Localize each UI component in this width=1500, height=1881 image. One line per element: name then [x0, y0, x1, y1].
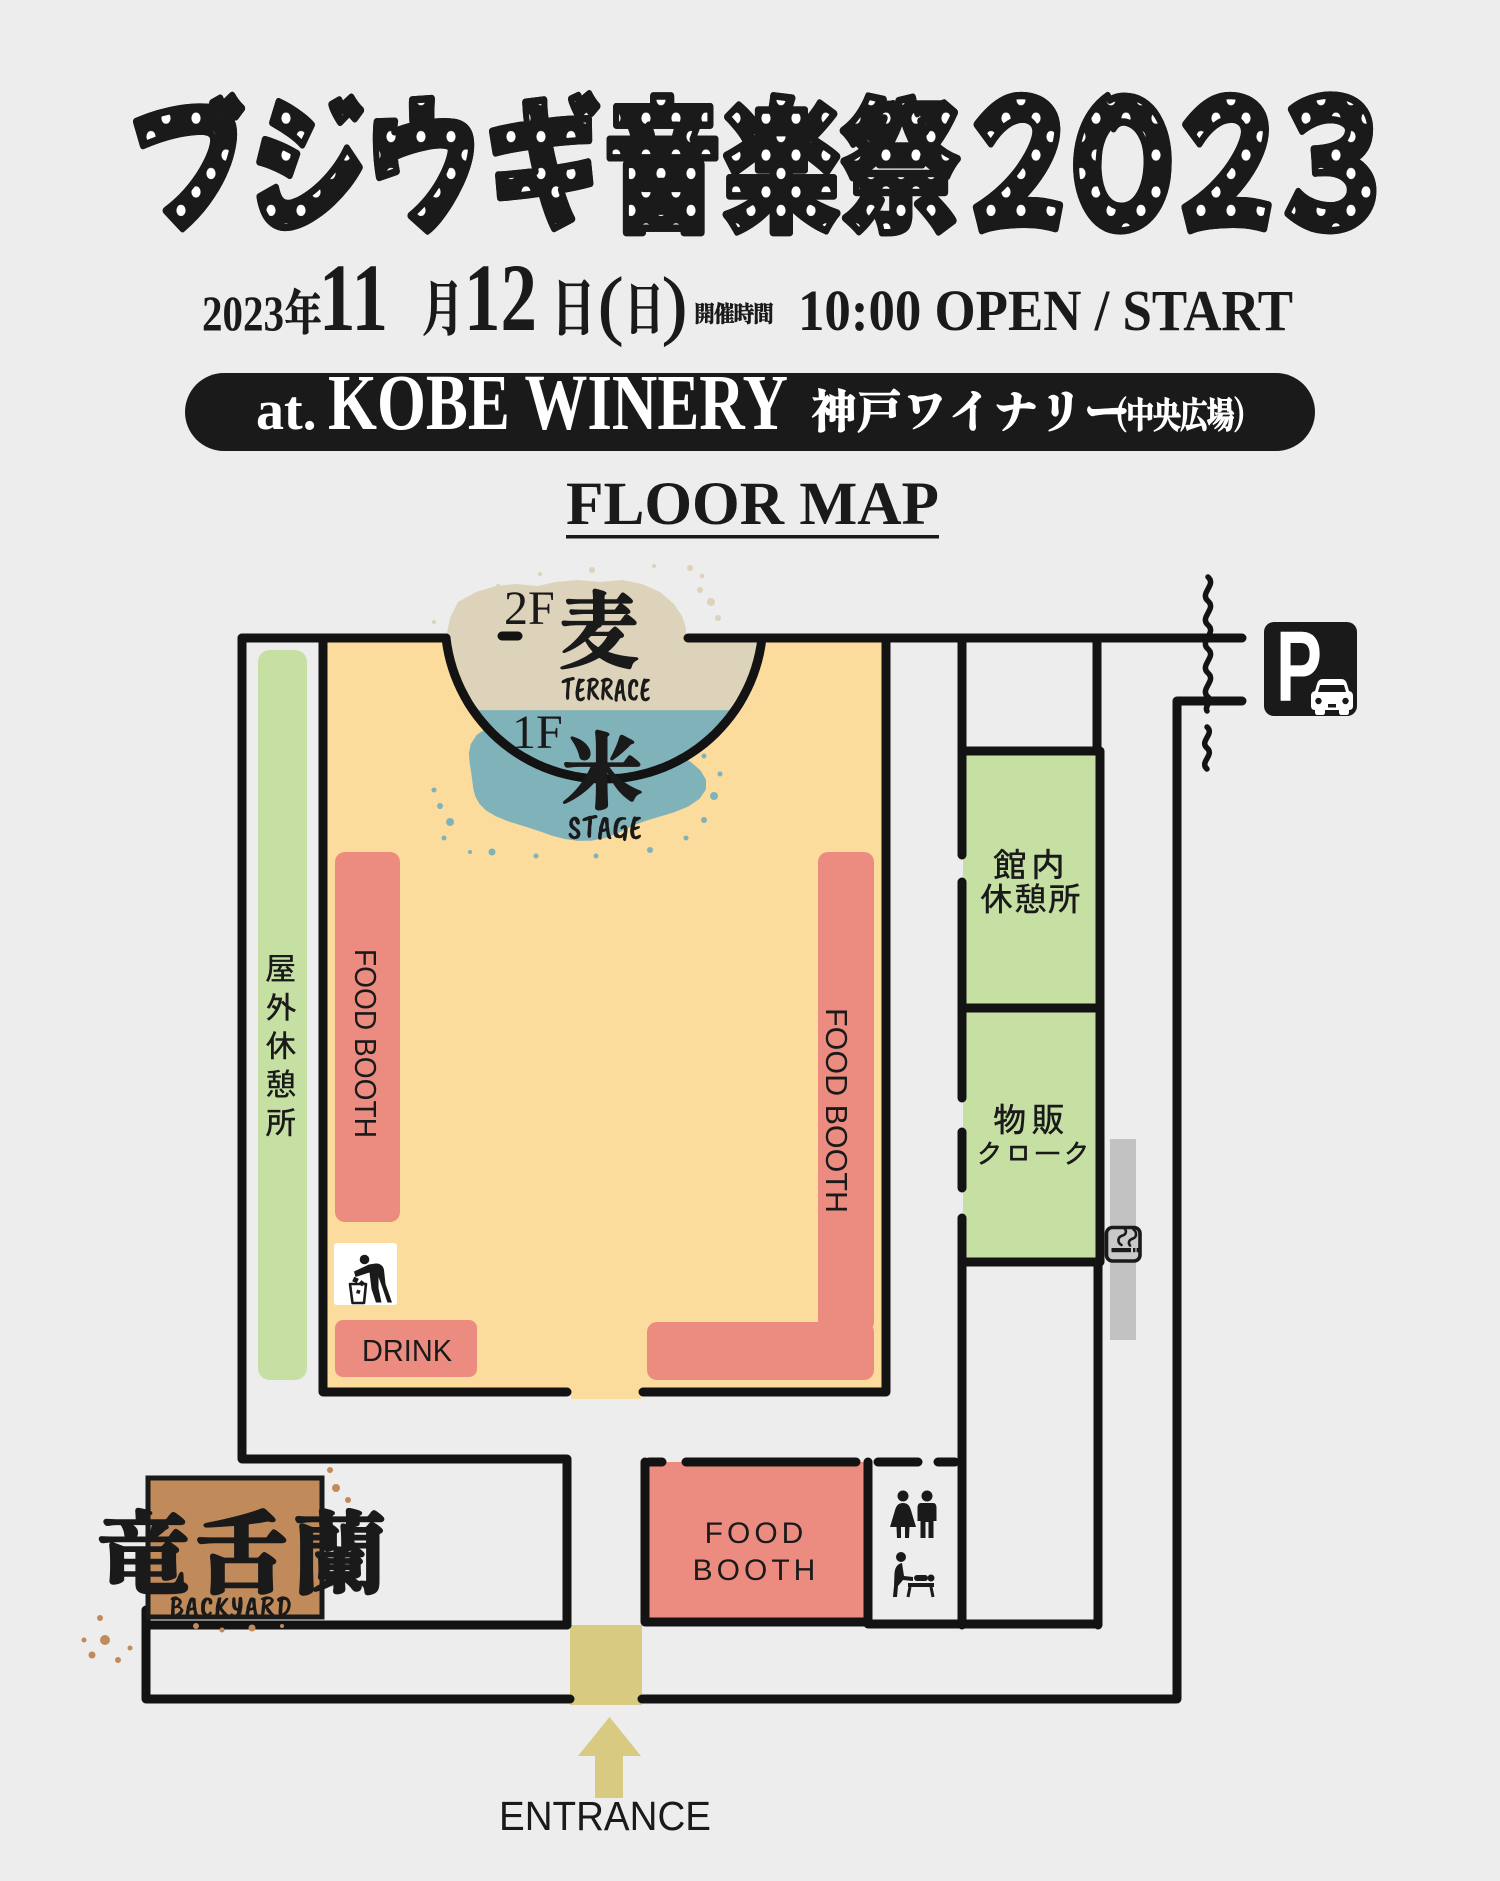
svg-text:12: 12 [464, 244, 537, 351]
svg-text:2023: 2023 [202, 285, 284, 341]
svg-text:1F: 1F [512, 706, 563, 759]
svg-text:11: 11 [319, 244, 388, 351]
svg-text:at.: at. [256, 380, 317, 442]
svg-text:FOOD: FOOD [705, 1517, 808, 1550]
svg-text:BOOTH: BOOTH [693, 1554, 820, 1587]
svg-text:(: ( [598, 263, 623, 347]
svg-text:FLOOR MAP: FLOOR MAP [566, 471, 939, 538]
svg-text:2F: 2F [504, 582, 555, 635]
svg-text:KOBE WINERY: KOBE WINERY [328, 360, 788, 447]
svg-text:FOOD BOOTH: FOOD BOOTH [819, 1008, 854, 1213]
svg-text:ENTRANCE: ENTRANCE [499, 1793, 711, 1839]
svg-text:): ) [662, 263, 687, 347]
svg-text:10:00 OPEN / START: 10:00 OPEN / START [798, 278, 1293, 343]
svg-text:FOOD BOOTH: FOOD BOOTH [348, 949, 383, 1138]
svg-text:DRINK: DRINK [362, 1333, 452, 1368]
